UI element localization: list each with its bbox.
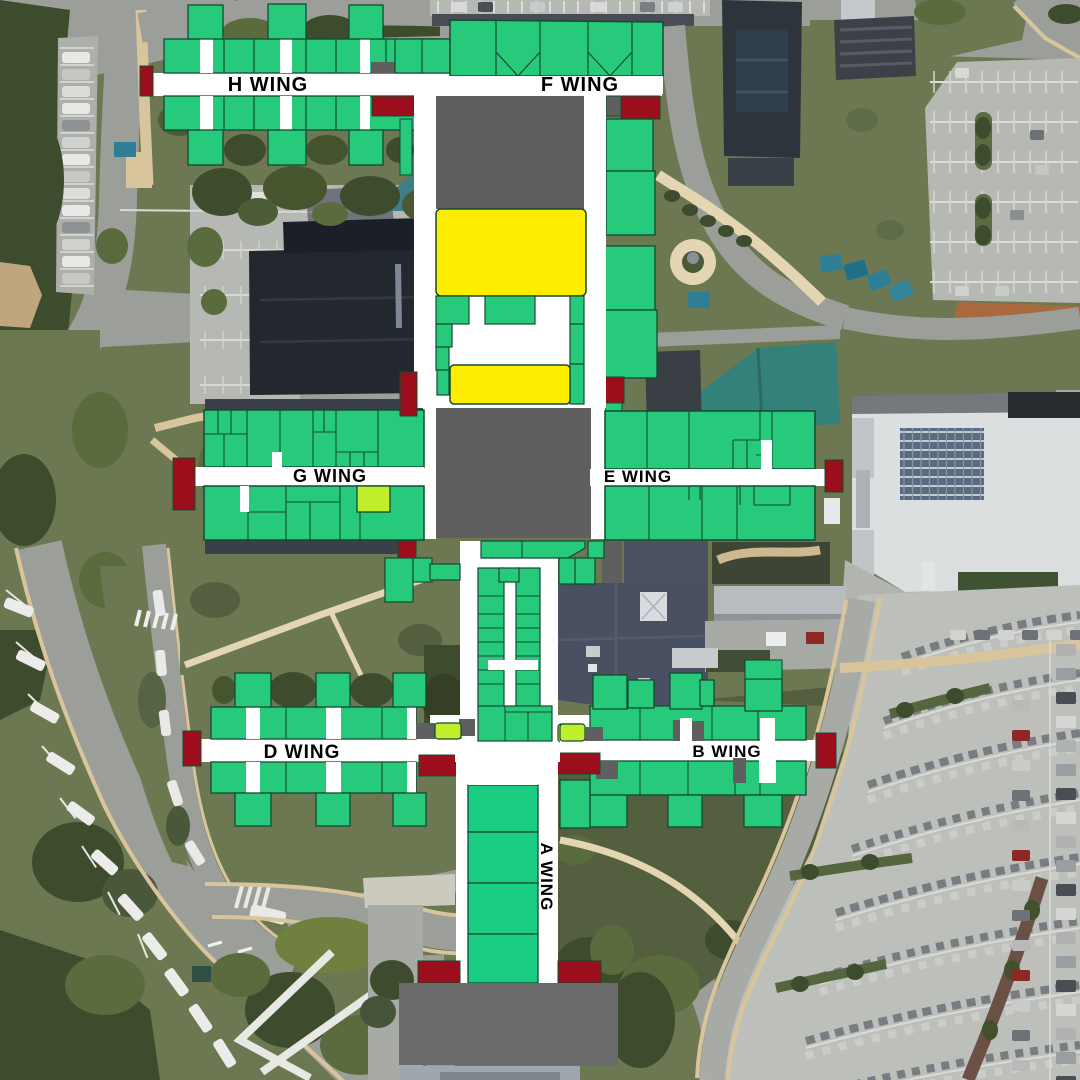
- svg-text:H WING: H WING: [228, 74, 308, 96]
- svg-text:F WING: F WING: [541, 74, 619, 96]
- svg-text:B WING: B WING: [692, 742, 761, 761]
- svg-text:D WING: D WING: [264, 742, 341, 763]
- svg-text:E WING: E WING: [604, 467, 672, 486]
- svg-text:G WING: G WING: [293, 466, 367, 486]
- svg-text:A WING: A WING: [537, 843, 556, 912]
